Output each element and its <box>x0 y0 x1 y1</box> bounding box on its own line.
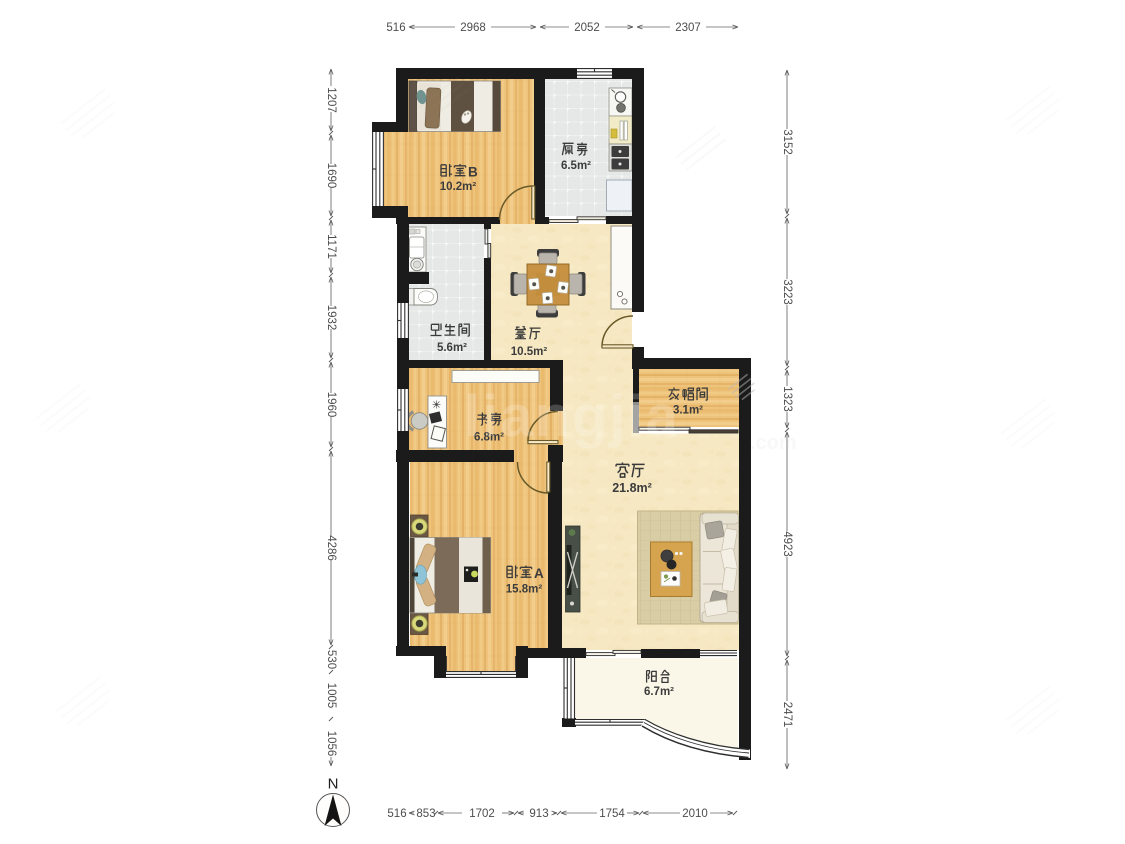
svg-text:5.6m²: 5.6m² <box>437 342 467 354</box>
svg-text:2010: 2010 <box>682 808 708 820</box>
svg-text:2052: 2052 <box>574 22 600 34</box>
svg-text:15.8m²: 15.8m² <box>506 584 543 596</box>
svg-text:516: 516 <box>387 808 406 820</box>
svg-text:1702: 1702 <box>469 808 495 820</box>
svg-text:liangjia: liangjia <box>464 384 680 449</box>
svg-text:913: 913 <box>529 808 548 820</box>
svg-text:1932: 1932 <box>325 305 337 331</box>
svg-text:1754: 1754 <box>599 808 625 820</box>
svg-text:2968: 2968 <box>460 22 486 34</box>
svg-text:1960: 1960 <box>325 392 337 418</box>
svg-text:B: B <box>468 165 478 180</box>
svg-text:2307: 2307 <box>675 22 701 34</box>
svg-text:6.7m²: 6.7m² <box>644 686 674 698</box>
svg-text:10.2m²: 10.2m² <box>440 181 477 193</box>
svg-text:3152: 3152 <box>781 129 793 155</box>
svg-text:1005: 1005 <box>325 683 337 709</box>
svg-text:21.8m²: 21.8m² <box>612 481 652 495</box>
svg-text:4923: 4923 <box>781 531 793 557</box>
svg-text:.com: .com <box>750 432 797 454</box>
svg-text:3223: 3223 <box>781 279 793 305</box>
svg-text:A: A <box>534 566 544 581</box>
svg-text:1323: 1323 <box>781 386 793 412</box>
svg-text:6.5m²: 6.5m² <box>561 160 591 172</box>
svg-text:N: N <box>328 776 339 793</box>
svg-text:1056: 1056 <box>325 731 337 757</box>
svg-text:2471: 2471 <box>781 702 793 728</box>
svg-text:10.5m²: 10.5m² <box>511 346 548 358</box>
svg-text:853: 853 <box>416 808 435 820</box>
svg-text:1207: 1207 <box>325 87 337 113</box>
svg-text:530: 530 <box>325 650 337 669</box>
svg-text:516: 516 <box>386 22 405 34</box>
svg-text:1690: 1690 <box>325 163 337 189</box>
svg-text:1171: 1171 <box>325 234 337 259</box>
svg-text:4286: 4286 <box>325 535 337 561</box>
